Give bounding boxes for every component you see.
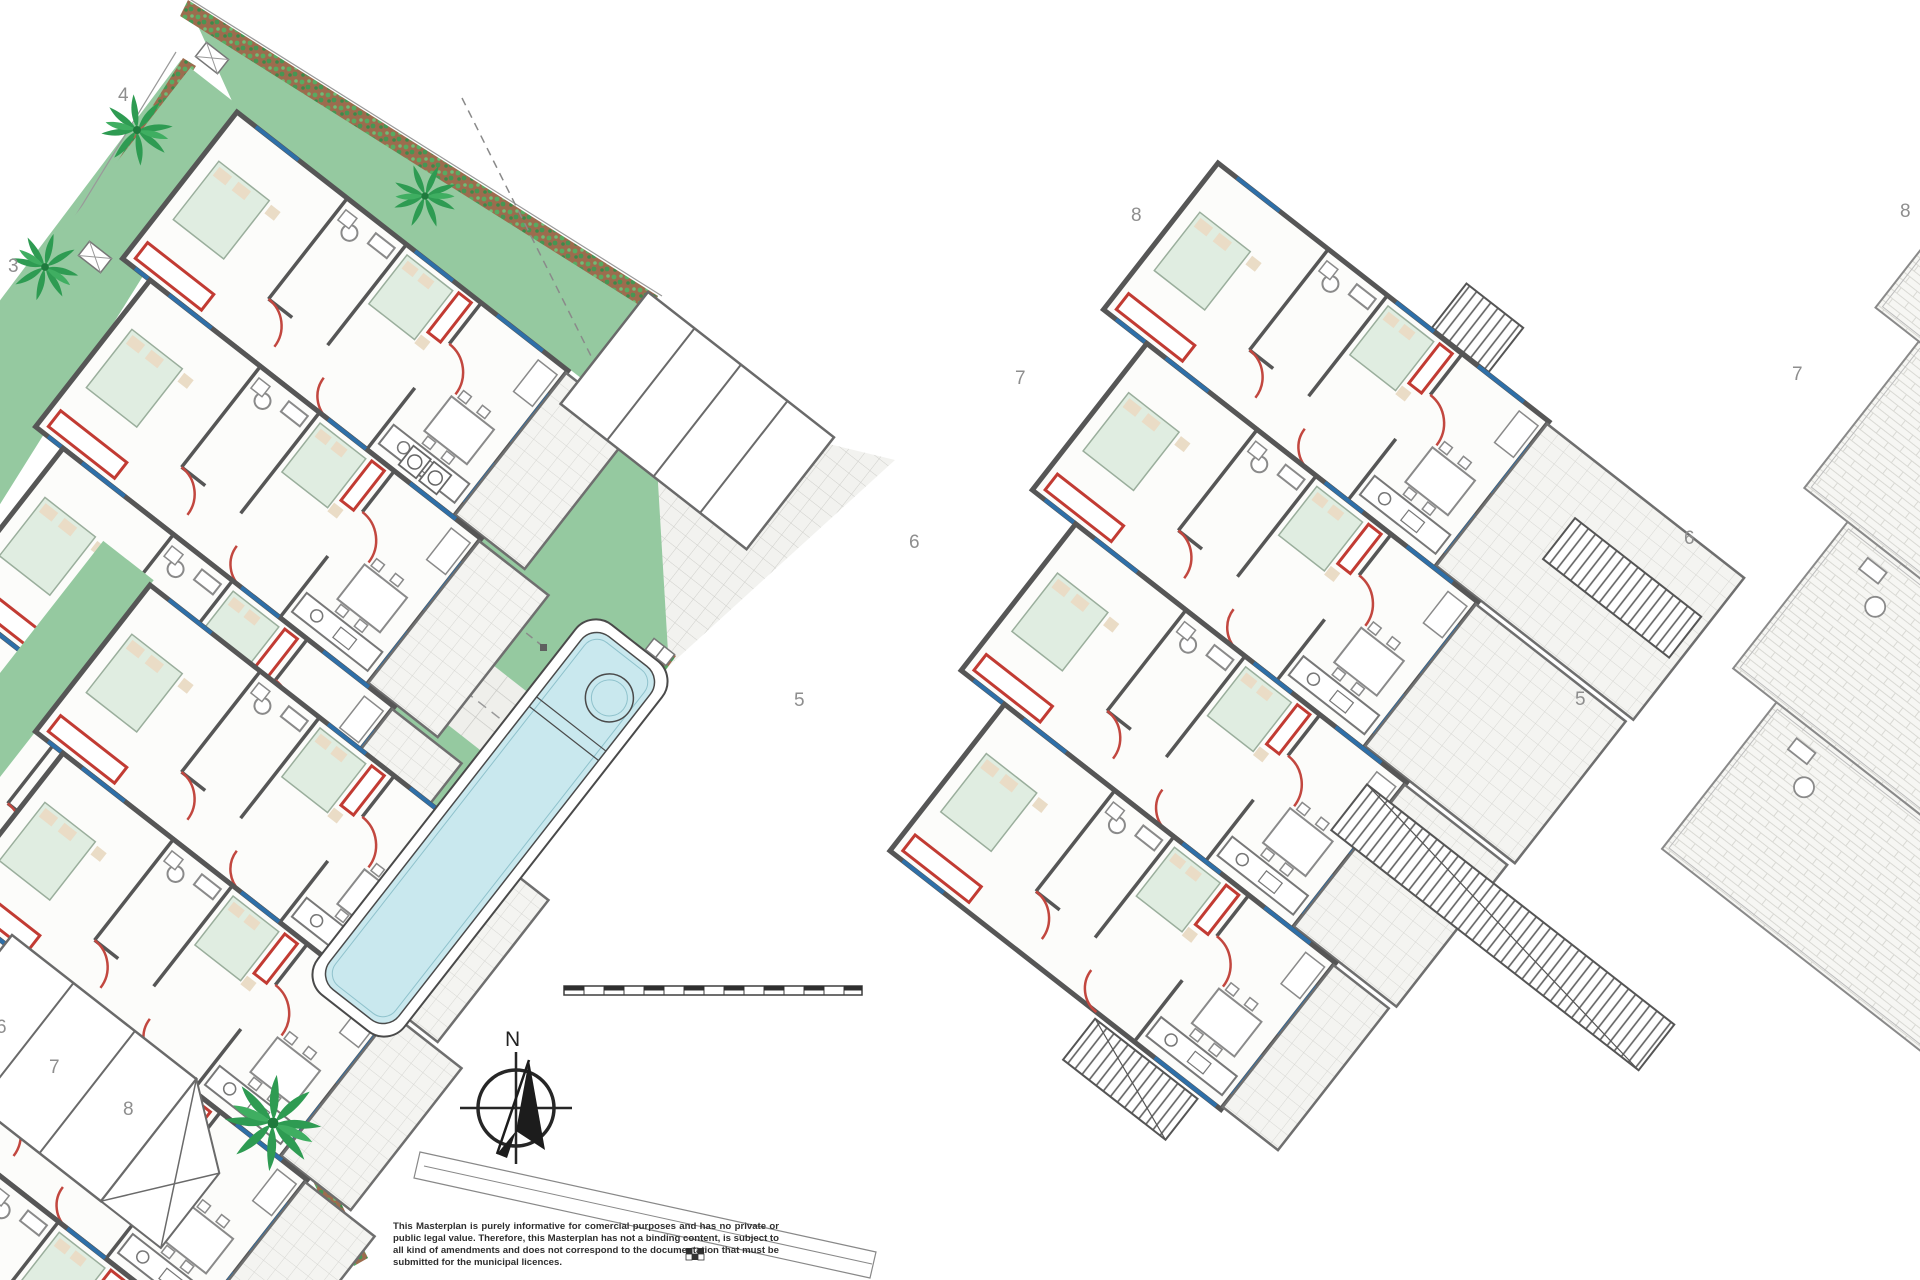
site-plot-label-7: 7	[49, 1058, 60, 1077]
roof-unit-label-7: 7	[1792, 365, 1803, 384]
site-plot-label-8: 8	[123, 1100, 134, 1119]
north-arrow-icon	[460, 1052, 572, 1164]
north-label: N	[505, 1028, 520, 1052]
roof-plan	[1532, 161, 1920, 1215]
site-plot-label-3: 3	[8, 257, 19, 276]
roof-unit-label-8: 8	[1900, 202, 1911, 221]
upper-floor-plan	[724, 117, 1920, 1280]
floor-unit-label-6: 6	[909, 533, 920, 552]
site-plot-label-4: 4	[118, 86, 129, 105]
masterplan-drawing	[0, 0, 1920, 1280]
roof-unit-label-6: 6	[1684, 529, 1695, 548]
scale-bar	[564, 986, 862, 995]
floor-unit-label-5: 5	[794, 691, 805, 710]
site-plot-label-6: 6	[0, 1018, 7, 1037]
masterplan-page: { "page": { "background": "#ffffff", "co…	[0, 0, 1920, 1280]
floor-unit-label-8: 8	[1131, 206, 1142, 225]
floor-unit-label-7: 7	[1015, 369, 1026, 388]
site-plan	[0, 0, 895, 1280]
disclaimer-text: This Masterplan is purely informative fo…	[393, 1221, 779, 1269]
roof-unit-label-5: 5	[1575, 690, 1586, 709]
